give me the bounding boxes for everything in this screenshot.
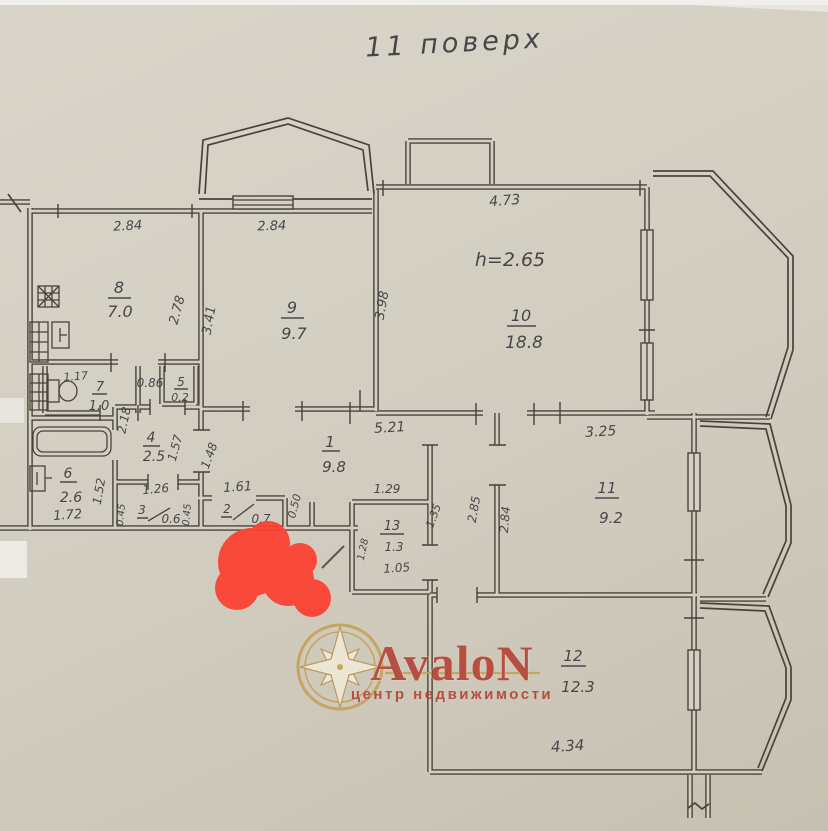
floor-plan-svg: 11 поверх — [0, 0, 828, 831]
dim-hall-width: 1.26 — [142, 481, 170, 497]
dim-passage-jamb: 1.35 — [423, 502, 444, 529]
stove-icon — [38, 286, 59, 307]
dim-closet3-jamb: 0.45 — [115, 503, 128, 526]
bay-right-middle — [700, 421, 791, 597]
room-13-area: 1.3 — [384, 540, 403, 554]
dim-room9-width: 2.84 — [257, 219, 286, 235]
room-4-number: 4 — [147, 430, 156, 446]
dim-room11-width: 3.25 — [585, 423, 617, 441]
door-jamb-ticks — [58, 180, 704, 618]
room-3-number: 3 — [138, 503, 146, 517]
watermark: AvaloN центр недвижимости — [298, 625, 553, 709]
room-12-number: 12 — [563, 647, 582, 665]
dim-room10-width: 4.73 — [489, 192, 521, 210]
dim-room11-depth: 2.84 — [497, 506, 513, 534]
bathtub-icon — [33, 427, 111, 456]
dim-hall-inner-depth: 1.57 — [165, 433, 186, 463]
dim-corridor-left: 1.48 — [198, 440, 220, 470]
window-room10-right-1 — [641, 230, 653, 300]
pencil-stroke — [322, 546, 344, 568]
watermark-tagline: центр недвижимости — [351, 686, 553, 703]
room-13-number: 13 — [384, 519, 401, 534]
walls — [0, 141, 770, 818]
bay-right-lower — [700, 603, 791, 771]
room-1-area: 9.8 — [322, 458, 346, 476]
window-room10-right-2 — [641, 343, 653, 400]
dim-lobby-width: 0.86 — [137, 376, 164, 390]
room-4-area: 2.5 — [143, 449, 165, 465]
paper-blemishes — [0, 0, 828, 578]
room-9-number: 9 — [287, 298, 297, 317]
dim-corridor-width: 5.21 — [374, 419, 406, 437]
dim-kitchen-width: 2.84 — [113, 218, 143, 234]
room-2-number: 2 — [223, 502, 231, 516]
window-room11-right — [688, 453, 700, 511]
floorplan-photo: 11 поверх — [0, 0, 828, 831]
room-12-area: 12.3 — [561, 678, 594, 696]
window-room9-top — [233, 196, 293, 209]
windows — [233, 196, 700, 710]
bay-top-pentagon — [199, 118, 374, 194]
dim-closet2-jamb: 0.45 — [181, 503, 194, 526]
room-11-number: 11 — [597, 479, 616, 497]
bath-sink-icon — [30, 466, 52, 491]
kitchen-sink-icon — [52, 322, 69, 348]
dim-bath-depth: 1.52 — [90, 477, 108, 506]
watermark-brand: AvaloN — [370, 635, 533, 691]
dim-bath-width: 1.72 — [53, 507, 83, 524]
page-title: 11 поверх — [364, 23, 544, 63]
room-5-number: 5 — [177, 375, 185, 389]
dim-closet2-width: 1.61 — [223, 479, 253, 496]
toilet-icon — [47, 380, 77, 402]
room-9-area: 9.7 — [281, 324, 307, 343]
dim-room12-width: 4.34 — [550, 736, 585, 756]
ceiling-height-note: h=2.65 — [475, 249, 545, 271]
room-11-area: 9.2 — [599, 509, 623, 527]
room-10-area: 18.8 — [505, 333, 543, 353]
dim-pantry-depth: 1.28 — [356, 537, 371, 561]
room-6-number: 6 — [64, 466, 73, 482]
room-3-area: 0.6 — [161, 512, 180, 526]
room-6-area: 2.6 — [60, 490, 82, 506]
dim-wc-width: 1.17 — [63, 369, 88, 384]
room-7-number: 7 — [96, 380, 105, 395]
room-8-area: 7.0 — [107, 302, 132, 321]
dim-kitchen-depth: 2.78 — [167, 294, 189, 326]
room-7-area: 1.0 — [89, 399, 110, 414]
dim-passage-depth: 2.85 — [465, 495, 483, 524]
room-8-number: 8 — [114, 278, 124, 297]
red-marker-blob — [215, 521, 331, 617]
window-room12-right — [688, 650, 700, 710]
dim-closet2-right: 0.50 — [285, 493, 304, 520]
room-1-number: 1 — [325, 433, 335, 451]
bay-right-upper — [653, 171, 793, 419]
dim-pantry-inner-width: 1.05 — [383, 560, 411, 576]
dim-pantry-width: 1.29 — [374, 482, 401, 496]
room-10-number: 10 — [511, 306, 531, 325]
room-5-area: 0.2 — [171, 391, 189, 404]
